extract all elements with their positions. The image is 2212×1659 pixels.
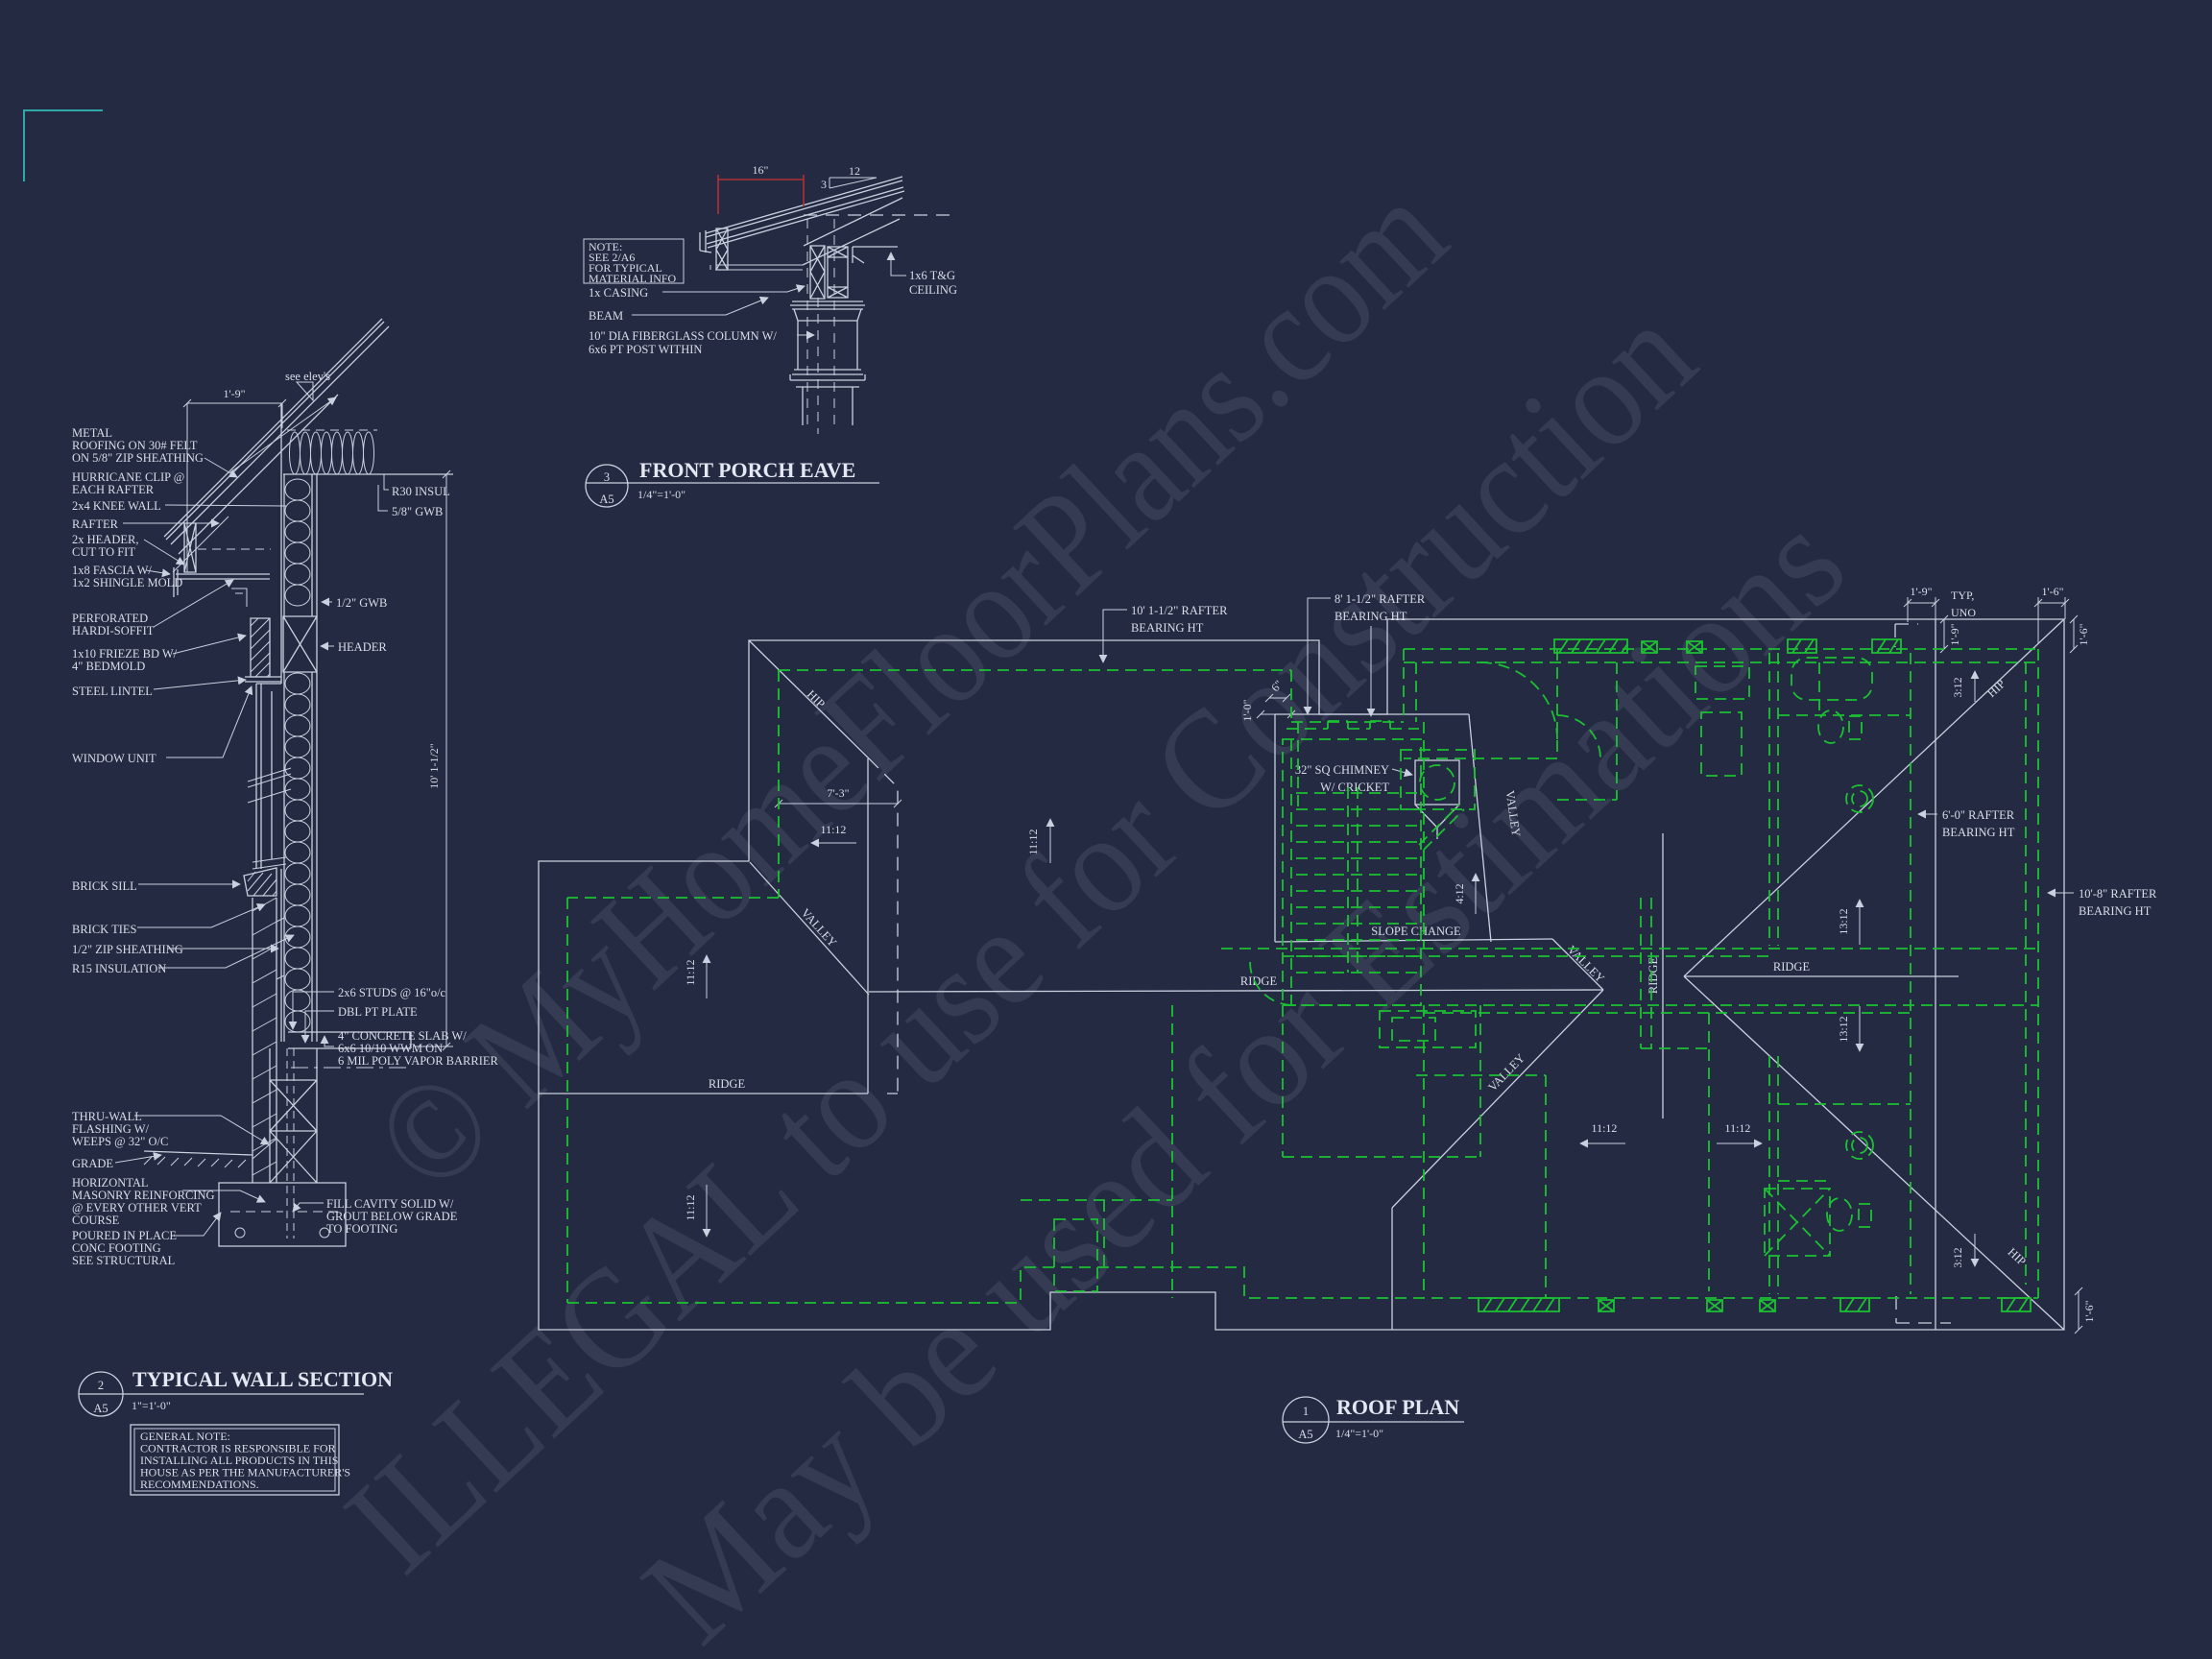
svg-text:2: 2 bbox=[98, 1379, 104, 1392]
svg-text:32" SQ CHIMNEY: 32" SQ CHIMNEY bbox=[1295, 763, 1389, 777]
svg-text:BEARING HT: BEARING HT bbox=[1942, 826, 2015, 839]
svg-text:2x4 KNEE WALL: 2x4 KNEE WALL bbox=[72, 499, 161, 513]
svg-text:FLASHING W/: FLASHING W/ bbox=[72, 1122, 150, 1136]
svg-text:RECOMMENDATIONS.: RECOMMENDATIONS. bbox=[140, 1478, 259, 1491]
svg-text:STEEL LINTEL: STEEL LINTEL bbox=[72, 685, 153, 698]
svg-text:4" BEDMOLD: 4" BEDMOLD bbox=[72, 660, 145, 673]
svg-text:EACH RAFTER: EACH RAFTER bbox=[72, 483, 155, 496]
svg-text:BRICK TIES: BRICK TIES bbox=[72, 923, 137, 936]
svg-text:TYPICAL WALL SECTION: TYPICAL WALL SECTION bbox=[132, 1367, 393, 1391]
svg-text:10" DIA FIBERGLASS COLUMN W/: 10" DIA FIBERGLASS COLUMN W/ bbox=[589, 329, 777, 343]
svg-text:GROUT BELOW GRADE: GROUT BELOW GRADE bbox=[326, 1210, 458, 1223]
svg-text:BEARING HT: BEARING HT bbox=[1131, 621, 1204, 635]
svg-text:1'-0": 1'-0" bbox=[1240, 699, 1254, 721]
svg-text:3: 3 bbox=[604, 470, 610, 484]
svg-text:POURED IN PLACE: POURED IN PLACE bbox=[72, 1229, 177, 1242]
svg-text:SEE STRUCTURAL: SEE STRUCTURAL bbox=[72, 1254, 175, 1267]
svg-text:1x2 SHINGLE MOLD: 1x2 SHINGLE MOLD bbox=[72, 576, 182, 589]
svg-text:W/ CRICKET: W/ CRICKET bbox=[1320, 781, 1389, 794]
svg-text:11:12: 11:12 bbox=[821, 823, 847, 836]
svg-text:RAFTER: RAFTER bbox=[72, 517, 119, 531]
svg-text:1'-6": 1'-6" bbox=[2077, 623, 2090, 645]
svg-text:PERFORATED: PERFORATED bbox=[72, 612, 148, 625]
svg-text:CONC FOOTING: CONC FOOTING bbox=[72, 1241, 161, 1255]
svg-text:MATERIAL INFO: MATERIAL INFO bbox=[589, 272, 677, 285]
svg-text:11:12: 11:12 bbox=[1725, 1121, 1751, 1135]
svg-text:1'-9": 1'-9" bbox=[223, 387, 245, 400]
svg-text:8' 1-1/2" RAFTER: 8' 1-1/2" RAFTER bbox=[1334, 592, 1426, 606]
svg-text:SLOPE CHANGE: SLOPE CHANGE bbox=[1371, 925, 1461, 938]
svg-text:1/4"=1'-0": 1/4"=1'-0" bbox=[1335, 1427, 1383, 1440]
svg-text:HEADER: HEADER bbox=[338, 640, 387, 654]
svg-text:7'-3": 7'-3" bbox=[827, 786, 849, 800]
svg-text:11:12: 11:12 bbox=[1592, 1121, 1618, 1135]
svg-text:6x6 PT POST WITHIN: 6x6 PT POST WITHIN bbox=[589, 343, 702, 356]
svg-text:10'-8" RAFTER: 10'-8" RAFTER bbox=[2079, 887, 2157, 901]
svg-text:1/2" ZIP SHEATHING: 1/2" ZIP SHEATHING bbox=[72, 943, 183, 956]
svg-text:BEAM: BEAM bbox=[589, 309, 623, 323]
svg-text:CEILING: CEILING bbox=[909, 283, 957, 297]
svg-text:WINDOW UNIT: WINDOW UNIT bbox=[72, 752, 156, 765]
svg-text:ON 5/8" ZIP SHEATHING: ON 5/8" ZIP SHEATHING bbox=[72, 451, 204, 465]
svg-text:UNO: UNO bbox=[1951, 606, 1976, 619]
svg-text:10' 1-1/2": 10' 1-1/2" bbox=[427, 743, 441, 788]
svg-text:A5: A5 bbox=[599, 493, 613, 506]
svg-text:3:12: 3:12 bbox=[1951, 677, 1964, 697]
svg-text:1"=1'-0": 1"=1'-0" bbox=[132, 1399, 171, 1412]
svg-text:4" CONCRETE SLAB W/: 4" CONCRETE SLAB W/ bbox=[338, 1029, 467, 1043]
svg-text:2x6 STUDS @ 16"o/c: 2x6 STUDS @ 16"o/c bbox=[338, 986, 446, 999]
svg-text:BEARING HT: BEARING HT bbox=[1334, 610, 1407, 623]
svg-text:HARDI-SOFFIT: HARDI-SOFFIT bbox=[72, 624, 155, 637]
svg-text:1x10 FRIEZE BD W/: 1x10 FRIEZE BD W/ bbox=[72, 647, 178, 661]
svg-text:WEEPS @ 32" O/C: WEEPS @ 32" O/C bbox=[72, 1135, 168, 1148]
svg-text:A5: A5 bbox=[1298, 1428, 1312, 1441]
svg-text:1/2" GWB: 1/2" GWB bbox=[336, 596, 387, 610]
svg-text:1'-6": 1'-6" bbox=[2082, 1300, 2096, 1322]
svg-text:11:12: 11:12 bbox=[684, 960, 697, 986]
svg-text:ROOF PLAN: ROOF PLAN bbox=[1336, 1395, 1459, 1419]
svg-text:THRU-WALL: THRU-WALL bbox=[72, 1110, 142, 1123]
svg-text:CUT TO FIT: CUT TO FIT bbox=[72, 545, 135, 559]
svg-text:1x8 FASCIA W/: 1x8 FASCIA W/ bbox=[72, 564, 152, 577]
svg-text:2x HEADER,: 2x HEADER, bbox=[72, 533, 138, 546]
svg-text:TYP,: TYP, bbox=[1951, 589, 1974, 602]
svg-text:13:12: 13:12 bbox=[1837, 1016, 1850, 1042]
svg-text:1x6 T&G: 1x6 T&G bbox=[909, 269, 955, 282]
svg-text:1x CASING: 1x CASING bbox=[589, 286, 648, 300]
svg-text:12: 12 bbox=[849, 164, 860, 178]
svg-text:BRICK SILL: BRICK SILL bbox=[72, 879, 137, 893]
svg-text:TO FOOTING: TO FOOTING bbox=[326, 1222, 397, 1236]
svg-text:11:12: 11:12 bbox=[684, 1195, 697, 1221]
svg-text:@ EVERY OTHER VERT: @ EVERY OTHER VERT bbox=[72, 1201, 202, 1214]
svg-text:1'-9": 1'-9" bbox=[1910, 585, 1932, 598]
svg-text:1: 1 bbox=[1303, 1405, 1309, 1418]
svg-text:METAL: METAL bbox=[72, 426, 112, 440]
svg-text:R15 INSULATION: R15 INSULATION bbox=[72, 962, 166, 975]
svg-text:COURSE: COURSE bbox=[72, 1214, 120, 1227]
svg-text:16": 16" bbox=[753, 163, 769, 177]
svg-text:FILL CAVITY SOLID W/: FILL CAVITY SOLID W/ bbox=[326, 1197, 454, 1211]
svg-text:5/8" GWB: 5/8" GWB bbox=[392, 505, 443, 518]
svg-text:1/4"=1'-0": 1/4"=1'-0" bbox=[637, 488, 685, 501]
svg-text:3: 3 bbox=[821, 178, 827, 191]
svg-text:FRONT PORCH EAVE: FRONT PORCH EAVE bbox=[639, 458, 855, 482]
svg-text:4:12: 4:12 bbox=[1453, 883, 1466, 903]
svg-text:1'-9": 1'-9" bbox=[1948, 623, 1961, 645]
svg-text:HORIZONTAL: HORIZONTAL bbox=[72, 1176, 149, 1190]
svg-text:RIDGE: RIDGE bbox=[1773, 960, 1811, 974]
svg-text:RIDGE: RIDGE bbox=[1240, 974, 1278, 988]
svg-text:11:12: 11:12 bbox=[1026, 829, 1040, 855]
svg-text:3:12: 3:12 bbox=[1951, 1247, 1964, 1267]
svg-text:RIDGE: RIDGE bbox=[709, 1077, 746, 1091]
svg-text:GRADE: GRADE bbox=[72, 1157, 113, 1170]
svg-text:13:12: 13:12 bbox=[1837, 908, 1850, 934]
svg-text:RIDGE: RIDGE bbox=[1647, 957, 1660, 995]
svg-text:A5: A5 bbox=[93, 1402, 108, 1415]
svg-text:6x6 10/10 WWM ON: 6x6 10/10 WWM ON bbox=[338, 1042, 443, 1055]
svg-text:6 MIL POLY VAPOR BARRIER: 6 MIL POLY VAPOR BARRIER bbox=[338, 1054, 498, 1068]
svg-text:DBL PT PLATE: DBL PT PLATE bbox=[338, 1005, 418, 1019]
svg-text:see elev's: see elev's bbox=[285, 370, 330, 383]
svg-text:10' 1-1/2" RAFTER: 10' 1-1/2" RAFTER bbox=[1131, 604, 1228, 617]
svg-text:1'-6": 1'-6" bbox=[2041, 585, 2063, 598]
svg-text:HURRICANE CLIP @: HURRICANE CLIP @ bbox=[72, 470, 184, 484]
svg-text:R30 INSUL: R30 INSUL bbox=[392, 485, 450, 498]
svg-text:ROOFING ON 30# FELT: ROOFING ON 30# FELT bbox=[72, 439, 198, 452]
svg-text:BEARING HT: BEARING HT bbox=[2079, 904, 2152, 918]
svg-text:6'-0" RAFTER: 6'-0" RAFTER bbox=[1942, 808, 2015, 822]
